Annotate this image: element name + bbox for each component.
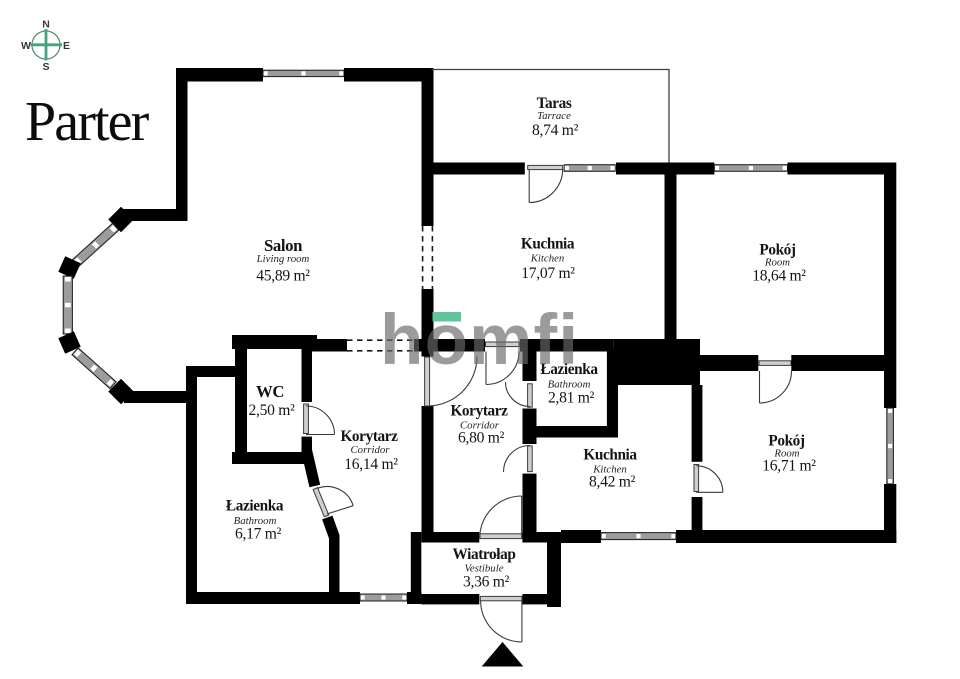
svg-text:E: E <box>63 40 70 52</box>
svg-text:Wiatrołap: Wiatrołap <box>453 546 516 563</box>
svg-text:18,64 m²: 18,64 m² <box>752 268 806 285</box>
svg-text:3,36 m²: 3,36 m² <box>463 573 510 590</box>
svg-text:WC: WC <box>256 382 284 401</box>
svg-text:Kitchen: Kitchen <box>530 253 565 265</box>
svg-text:Corridor: Corridor <box>350 444 390 456</box>
svg-text:Room: Room <box>764 257 790 269</box>
svg-text:16,71 m²: 16,71 m² <box>762 458 816 475</box>
svg-text:S: S <box>42 61 49 73</box>
svg-text:Korytarz: Korytarz <box>340 428 398 445</box>
svg-text:8,74 m²: 8,74 m² <box>532 122 579 139</box>
svg-text:17,07 m²: 17,07 m² <box>521 265 575 282</box>
svg-text:6,17 m²: 6,17 m² <box>235 526 282 543</box>
svg-text:Parter: Parter <box>25 91 150 153</box>
svg-text:W: W <box>21 40 31 52</box>
svg-text:45,89 m²: 45,89 m² <box>256 268 310 285</box>
svg-text:Korytarz: Korytarz <box>450 403 508 420</box>
svg-text:2,81 m²: 2,81 m² <box>548 390 595 407</box>
svg-text:16,14 m²: 16,14 m² <box>344 456 398 473</box>
svg-text:6,80 m²: 6,80 m² <box>458 430 505 447</box>
svg-text:8,42 m²: 8,42 m² <box>589 474 636 491</box>
svg-text:2,50 m²: 2,50 m² <box>249 402 296 419</box>
svg-text:Łazienka: Łazienka <box>226 497 284 514</box>
svg-text:Kuchnia: Kuchnia <box>583 447 637 464</box>
svg-text:N: N <box>42 19 50 31</box>
svg-text:Tarrace: Tarrace <box>537 110 571 122</box>
svg-text:homfi: homfi <box>380 301 579 380</box>
svg-text:Living room: Living room <box>256 253 310 265</box>
svg-text:Kuchnia: Kuchnia <box>521 236 575 253</box>
